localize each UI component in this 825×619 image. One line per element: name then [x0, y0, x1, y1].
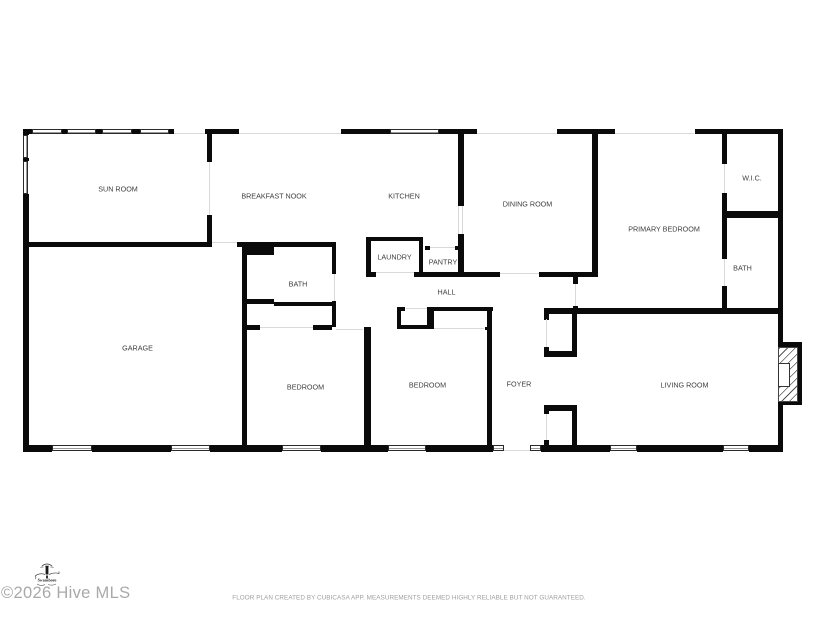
svg-text:Swansboro: Swansboro	[38, 578, 57, 583]
